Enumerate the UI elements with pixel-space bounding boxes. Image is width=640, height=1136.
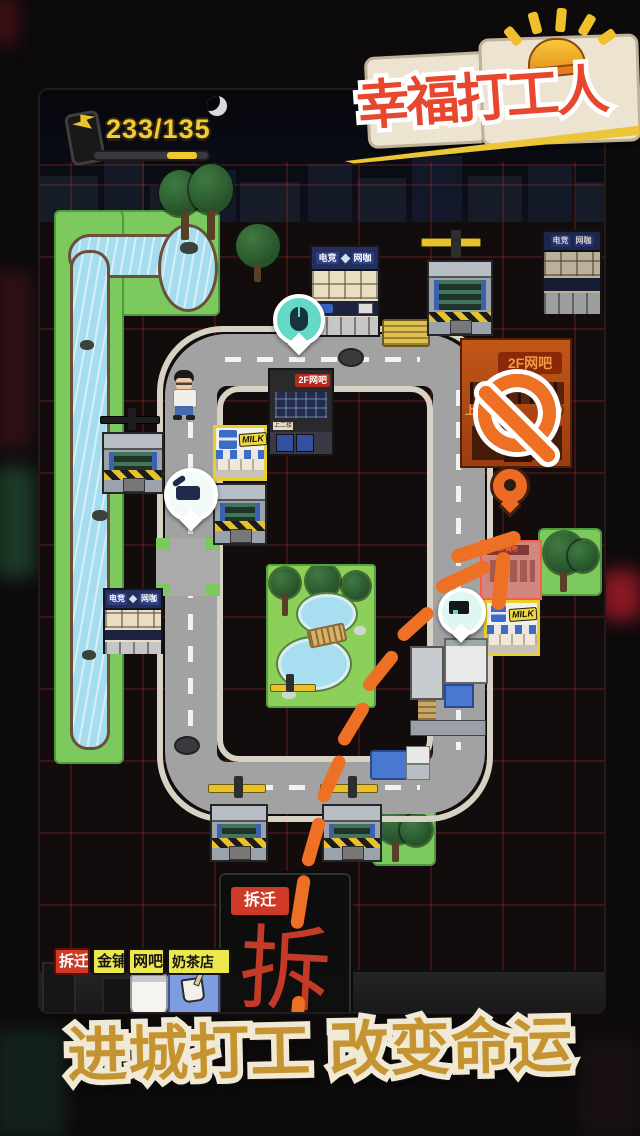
construction-body: [102, 432, 164, 494]
building-construction-bottomleft[interactable]: [208, 776, 272, 864]
tree-trunk: [207, 210, 215, 240]
shopfront: [216, 459, 264, 470]
energy-hud: 233/135: [60, 106, 260, 166]
grass-tile-right: [538, 528, 602, 596]
netbar-sign: 2F网吧: [295, 374, 330, 387]
manhole-bottom: [174, 736, 200, 755]
computer-mouse-icon: [290, 307, 308, 331]
crane-tower: [451, 230, 461, 258]
building-esports-cafe-rightedge[interactable]: 电竞网咖: [542, 230, 602, 314]
building-construction-midleft[interactable]: [213, 483, 267, 545]
worksite-block: [410, 646, 444, 700]
roof-slab: [215, 485, 265, 501]
roof-slab: [104, 434, 162, 450]
crossroad-corner: [206, 584, 220, 596]
building-construction-west[interactable]: [102, 408, 164, 494]
sign-text: 网咖: [352, 252, 374, 264]
bg-blob-left-green: [0, 466, 36, 578]
base: [216, 470, 264, 478]
phone-screen: 电竞网咖 电竞网咖 2F网吧 上二楼: [0, 0, 640, 1136]
character-shoe: [186, 415, 195, 420]
tag-milk-tea[interactable]: 奶茶店: [167, 948, 231, 975]
energy-bar-fill: [167, 152, 197, 159]
gray-box: [406, 764, 430, 780]
pin-excavator[interactable]: [164, 468, 216, 534]
building-construction-top[interactable]: [427, 230, 493, 336]
entrance: [105, 642, 161, 654]
awning: [487, 625, 537, 634]
river-rock: [82, 650, 96, 660]
crane-tower: [234, 776, 243, 798]
ac-unit: [358, 303, 373, 314]
no-entry-icon: [478, 374, 556, 452]
excavator-icon: [176, 486, 200, 500]
bg-blob-topleft-red: [0, 0, 16, 46]
bench: [382, 319, 430, 347]
tree-trunk: [181, 212, 189, 240]
door: [450, 320, 472, 334]
character-shoe: [173, 415, 182, 420]
sign-band: 电竞网咖: [312, 247, 378, 271]
crossroad-tile: [156, 538, 220, 596]
base: [487, 645, 537, 653]
door-panel: [296, 434, 314, 452]
milk-sign: MILK: [509, 607, 538, 622]
sun-ray-icon: [527, 11, 542, 35]
sign-text: 网咖: [574, 235, 594, 247]
destination-pin[interactable]: [490, 466, 530, 524]
river-rock: [80, 340, 94, 350]
sign-text: 电竞: [316, 252, 338, 264]
construction-body: [210, 804, 268, 862]
sign-text: 网咖: [139, 593, 159, 605]
character-face: [176, 378, 192, 389]
door: [123, 478, 145, 492]
sign-band: 电竞网咖: [544, 232, 600, 252]
door: [342, 846, 364, 860]
crane-tower: [348, 776, 357, 798]
windows: [544, 252, 600, 276]
milktea-cup-icon: [180, 977, 205, 1004]
windows: [109, 452, 157, 472]
roof-slab: [324, 806, 380, 822]
river-vertical: [70, 250, 110, 750]
game-logo: 幸福打工人 幸福打工人: [340, 8, 640, 180]
windows: [434, 280, 486, 310]
tree-crown: [189, 164, 233, 214]
crossroad-corner: [156, 538, 170, 550]
demolition-panel[interactable]: 拆迁 拆: [219, 873, 351, 1014]
sun-ray-icon: [555, 8, 567, 33]
netbar-sign-large: 2F网吧: [498, 352, 562, 374]
character-pants: [175, 406, 193, 415]
pin-worksite[interactable]: [438, 588, 484, 646]
milk-sign: MILK: [239, 432, 268, 447]
game-viewport: 电竞网咖 电竞网咖 2F网吧 上二楼: [38, 88, 606, 1014]
awning: [216, 450, 264, 459]
roof-slab: [212, 806, 266, 822]
tree-crown: [568, 540, 598, 572]
upstairs-chip: 上二楼: [273, 422, 293, 430]
tree-riverbank: [234, 224, 284, 284]
milk-cup-icon: [219, 430, 237, 449]
river-rock: [92, 510, 108, 521]
windows: [275, 392, 327, 418]
building-milk-shop-right[interactable]: MILK: [484, 600, 540, 656]
building-netbar-2f-small[interactable]: 2F网吧 上二楼: [268, 368, 334, 456]
up-label: 上: [465, 402, 476, 418]
sign-band: 电竞网咖: [105, 590, 161, 610]
pin-hole: [504, 479, 516, 491]
demolition-label: 拆迁: [231, 887, 289, 915]
manhole-top: [338, 348, 364, 367]
bg-blob-left-maroon: [0, 270, 32, 450]
lower-band: [105, 630, 161, 640]
door-panel: [276, 434, 294, 452]
diamond-logo-icon: [129, 595, 137, 603]
tree-trunk: [392, 842, 399, 862]
windows: [105, 610, 161, 628]
building-milk-shop-left[interactable]: MILK: [213, 425, 267, 481]
diamond-logo-icon: [340, 253, 350, 263]
white-box: [406, 746, 430, 764]
pin-computer-mouse[interactable]: [273, 294, 325, 358]
shopfront: [487, 634, 537, 645]
blue-crate: [444, 684, 474, 708]
worksite-cluster[interactable]: [410, 638, 490, 734]
tagline-fill: 进城打工 改变命运: [67, 1012, 574, 1090]
tag-gold-shop[interactable]: 金铺: [92, 948, 126, 975]
construction-body: [322, 804, 382, 862]
sign-text: 电竞: [107, 593, 127, 605]
tag-demolition[interactable]: 拆迁: [54, 948, 90, 975]
tag-net-bar[interactable]: 网吧: [128, 948, 165, 975]
door: [230, 529, 252, 543]
sun-ray-icon: [577, 13, 597, 37]
tree-cluster-top: [157, 164, 233, 244]
worksite-icon: [449, 601, 469, 614]
tagline-banner: 进城打工 改变命运 进城打工 改变命运: [29, 996, 611, 1095]
entrance: [544, 293, 600, 314]
tree-trunk: [560, 572, 567, 592]
crane-tower: [128, 408, 136, 430]
building-netbar-2f-large-disabled[interactable]: 2F网吧 上: [460, 338, 572, 468]
player-character[interactable]: [167, 370, 201, 420]
construction-body: [427, 260, 493, 336]
building-esports-cafe-left[interactable]: 电竞网咖: [103, 588, 163, 654]
tree-crown: [236, 224, 280, 268]
tree-trunk: [254, 264, 261, 282]
worksite-base: [410, 720, 486, 736]
roof-slab: [429, 262, 491, 278]
door: [229, 846, 251, 860]
lower-band: [544, 278, 600, 291]
energy-value: 233/135: [106, 114, 211, 145]
demolition-glyph: 拆: [232, 912, 338, 1014]
sign-text: 电竞: [551, 235, 571, 247]
bg-blob-right-red: [600, 570, 640, 620]
